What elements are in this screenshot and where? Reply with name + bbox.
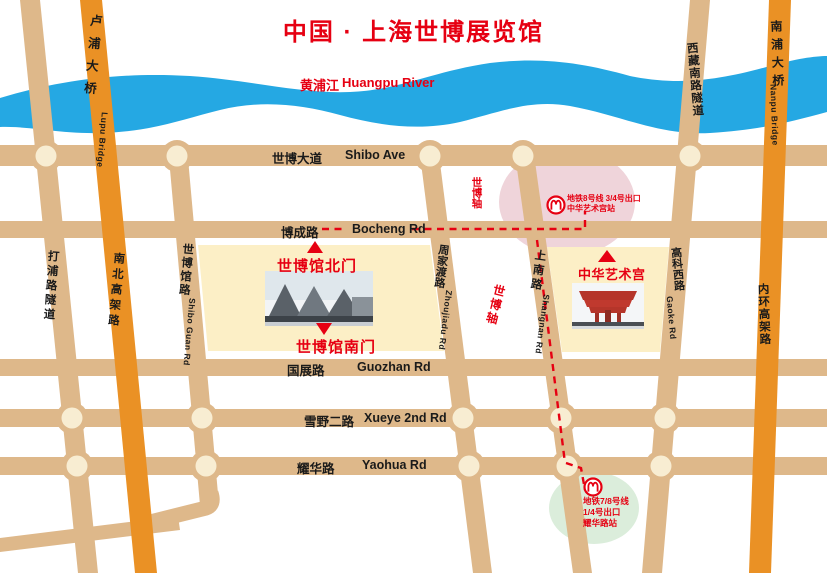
metro-station-line8: 地铁8号线 3/4号出口 中华艺术宫站 [567,194,641,214]
china-art-palace-photo [572,283,644,329]
expo-axis-label-1: 世博轴 [471,177,482,209]
roundabout [453,450,485,482]
roundabout [161,140,193,172]
roundabout [507,140,539,172]
roundabout [645,450,677,482]
roundabout [414,140,446,172]
expo-north-gate-label: 世博馆北门 [277,255,357,276]
metro-station-line8-line2: 中华艺术宫站 [567,204,641,214]
roundabout [447,402,479,434]
road-label-shibo-ave-zh: 世博大道 [272,148,322,167]
road-label-bocheng-en: Bocheng Rd [352,222,426,236]
river-label-en: Huangpu River [342,75,434,94]
roundabout [30,140,62,172]
roundabout [190,450,222,482]
road-label-xueye-zh: 雪野二路 [304,411,354,430]
expo-center-photo [265,271,373,326]
road-label-neihuan-elevated: 内环高架路 [756,283,770,346]
river-label: 黄浦江 Huangpu River [300,75,434,94]
expo-map: 中国 · 上海世博展览馆 黄浦江 Huangpu River 世博大道 Shib… [0,0,827,573]
metro-logo-line78-icon [585,479,602,496]
road-label-guozhan-zh: 国展路 [287,360,325,379]
road-label-guozhan-en: Guozhan Rd [357,360,431,374]
metro-station-line78: 地铁7/8号线 1/4号出口 耀华路站 [583,496,629,529]
metro-station-line78-line3: 耀华路站 [583,518,629,529]
art-palace-label: 中华艺术宫 [578,264,646,283]
metro-station-line78-line2: 1/4号出口 [583,507,629,518]
roundabout [56,402,88,434]
metro-logo-line8-icon [548,197,565,214]
road-label-yaohua-en: Yaohua Rd [362,458,427,472]
road-label-shibo-ave-en: Shibo Ave [345,148,405,162]
expo-south-gate-label: 世博馆南门 [296,336,376,357]
road-label-nanpu-bridge-zh: 南浦大桥 [770,20,785,92]
roundabout [674,140,706,172]
road-label-bocheng-zh: 博成路 [281,222,319,241]
river-label-zh: 黄浦江 [300,75,339,94]
metro-station-line78-line1: 地铁7/8号线 [583,496,629,507]
road-label-yaohua-zh: 耀华路 [297,458,335,477]
metro-station-line8-line1: 地铁8号线 3/4号出口 [567,194,641,204]
roundabout [649,402,681,434]
road-label-xueye-en: Xueye 2nd Rd [364,411,447,425]
page-title: 中国 · 上海世博展览馆 [0,12,827,47]
road-label-nanpu-bridge-en: Nanpu Bridge [769,84,780,146]
roundabout [186,402,218,434]
roundabout [61,450,93,482]
